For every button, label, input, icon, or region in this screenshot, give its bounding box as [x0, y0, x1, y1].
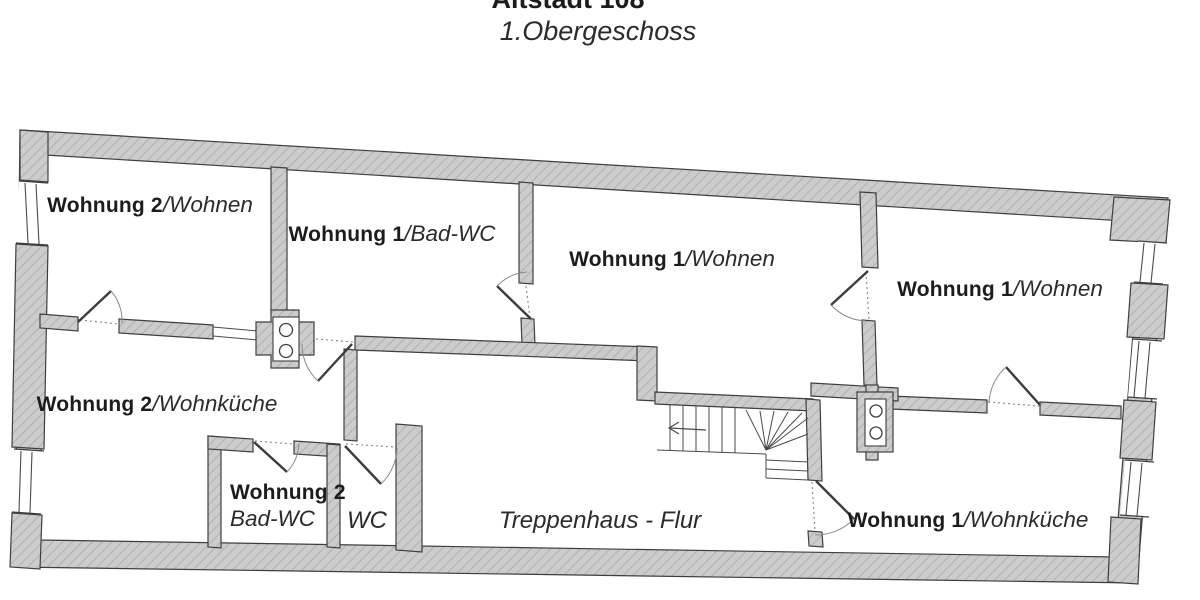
- floorplan-drawing: Altstadt 108 1.Obergeschoss: [0, 0, 1200, 600]
- interior-walls: [40, 167, 1121, 552]
- wall-block: [1120, 400, 1156, 460]
- room-label-wohnung1-badwc: Wohnung 1/Bad-WC: [289, 221, 497, 246]
- project-title: Altstadt 108: [491, 0, 644, 14]
- wall-block: [10, 513, 42, 569]
- room-label-wc: WC: [347, 507, 388, 534]
- chimney-icon: [857, 385, 893, 460]
- wall-block: [1127, 283, 1168, 339]
- room-label-wohnung1-wohnen-rechts: Wohnung 1/Wohnen: [897, 276, 1103, 301]
- floorplan-page: Altstadt 108 1.Obergeschoss: [0, 0, 1200, 600]
- room-label-wohnung2-badwc-line2: Bad-WC: [230, 506, 316, 531]
- wall-block: [1110, 197, 1170, 243]
- wall-block: [1108, 517, 1141, 584]
- room-label-wohnung2-wohnkueche: Wohnung 2/Wohnküche: [37, 391, 278, 416]
- wall-block: [20, 130, 48, 182]
- door-arc: [254, 441, 299, 472]
- room-label-wohnung1-wohnkueche: Wohnung 1/Wohnküche: [848, 507, 1089, 532]
- room-label-wohnung2-wohnen: Wohnung 2/Wohnen: [47, 192, 253, 217]
- room-label-wohnung1-wohnen-mitte: Wohnung 1/Wohnen: [569, 246, 775, 271]
- wall-block: [12, 244, 48, 449]
- door-arc: [345, 444, 397, 484]
- floor-title: 1.Obergeschoss: [500, 16, 697, 46]
- door-arc: [988, 367, 1040, 406]
- door-arc: [831, 271, 869, 321]
- room-labels: Wohnung 2/Wohnen Wohnung 1/Bad-WC Wohnun…: [37, 192, 1103, 534]
- staircase: [657, 405, 808, 480]
- room-label-wohnung2-badwc-line1: Wohnung 2: [230, 481, 346, 504]
- chimney-icon: [256, 310, 314, 368]
- door-arc: [78, 291, 122, 324]
- stair-direction-arrow-icon: [669, 422, 706, 434]
- room-label-treppenhaus-flur: Treppenhaus - Flur: [499, 507, 702, 534]
